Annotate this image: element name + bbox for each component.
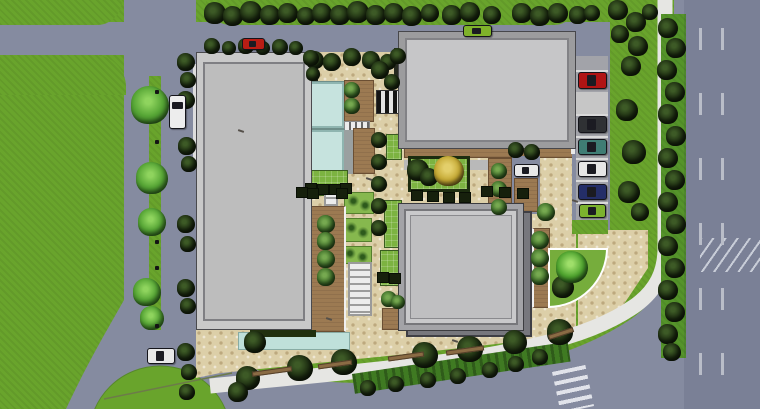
tree — [131, 86, 169, 124]
tree — [177, 53, 195, 71]
tree — [384, 74, 400, 90]
tree — [138, 208, 166, 236]
tree — [260, 5, 280, 25]
tree — [133, 278, 161, 306]
white-van-west-road — [169, 95, 186, 129]
tree — [628, 36, 648, 56]
ground-mark — [238, 129, 244, 133]
tree — [343, 48, 361, 66]
hedge-shrub — [307, 188, 319, 199]
hedge-shrub — [411, 190, 423, 201]
lane-dash — [699, 288, 702, 310]
tree — [611, 25, 629, 43]
tree — [140, 306, 164, 330]
tree — [360, 380, 376, 396]
tree — [524, 144, 540, 160]
car-windshield — [587, 164, 596, 174]
tree — [537, 203, 555, 221]
car-windshield — [249, 41, 256, 47]
tree — [531, 249, 549, 267]
tree — [450, 368, 466, 384]
tree — [204, 38, 220, 54]
tree — [658, 192, 678, 212]
hedge-shrub — [377, 272, 389, 283]
lane-dash — [721, 28, 724, 50]
car-windshield — [172, 102, 183, 109]
car-windshield — [156, 351, 164, 361]
tree — [391, 295, 405, 309]
tree — [482, 362, 498, 378]
lane-dash — [699, 93, 702, 115]
hedge-shrub — [427, 191, 439, 202]
car-windshield — [587, 75, 596, 86]
tree — [658, 280, 678, 300]
path-light — [155, 266, 159, 270]
tree — [658, 18, 678, 38]
tree — [178, 137, 196, 155]
tree — [317, 215, 335, 233]
tree — [584, 5, 600, 21]
tree — [222, 41, 236, 55]
dark-car-stall — [578, 116, 607, 133]
tree — [531, 267, 549, 285]
teal-car-stall — [578, 139, 607, 155]
tree — [666, 38, 686, 58]
tree — [366, 5, 386, 25]
tree — [434, 156, 464, 186]
tree — [371, 198, 387, 214]
tree — [244, 331, 266, 353]
tree — [508, 142, 524, 158]
tree — [503, 330, 527, 354]
tree — [658, 236, 678, 256]
tree — [384, 3, 404, 23]
car-windshield — [522, 167, 529, 174]
lane-dash — [721, 288, 724, 310]
tree — [460, 2, 480, 22]
red-car-top-road — [242, 38, 265, 50]
site-plan-render — [0, 0, 760, 409]
tree — [344, 98, 360, 114]
tree — [289, 41, 303, 55]
tree — [371, 176, 387, 192]
path-light — [155, 140, 159, 144]
tree — [323, 53, 341, 71]
red-car-stall — [578, 72, 607, 89]
tree — [181, 156, 197, 172]
lane-dash — [699, 353, 702, 375]
white-car-roundabout — [147, 348, 175, 364]
tree — [530, 6, 550, 26]
tree — [177, 279, 195, 297]
tree — [512, 3, 532, 23]
tree — [548, 3, 568, 23]
white-car-stall — [578, 161, 607, 177]
tree — [421, 4, 439, 22]
hedge-shrub — [517, 188, 529, 199]
tree — [136, 162, 168, 194]
ground-mark — [366, 177, 372, 181]
white-car-courtyard-lane — [514, 164, 539, 177]
lane-dash — [721, 93, 724, 115]
hedge-shrub — [336, 188, 348, 199]
tree — [228, 382, 248, 402]
car-windshield — [587, 142, 596, 152]
tree — [312, 3, 332, 23]
hedge-shrub — [499, 187, 511, 198]
tree — [483, 6, 501, 24]
tree — [317, 268, 335, 286]
tree — [371, 154, 387, 170]
ground-mark — [326, 317, 332, 321]
tree — [665, 170, 685, 190]
tree — [508, 356, 524, 372]
tree — [402, 6, 422, 26]
tree — [272, 39, 288, 55]
tree — [420, 372, 436, 388]
tree — [663, 343, 681, 361]
tree — [621, 56, 641, 76]
car-windshield — [588, 207, 596, 215]
lane-dash — [699, 28, 702, 50]
tree — [371, 132, 387, 148]
tree — [622, 140, 646, 164]
generated-layer — [0, 0, 760, 409]
tree — [616, 99, 638, 121]
tree — [665, 82, 685, 102]
hedge-shrub — [443, 192, 455, 203]
tree — [556, 251, 588, 283]
tree — [532, 349, 548, 365]
tree — [240, 1, 262, 23]
tree — [531, 231, 549, 249]
tree — [658, 104, 678, 124]
tree — [180, 72, 196, 88]
lane-dash — [699, 158, 702, 180]
tree — [180, 236, 196, 252]
tree — [657, 60, 677, 80]
tree — [390, 48, 406, 64]
green-car-stall — [579, 204, 606, 218]
tree — [658, 324, 678, 344]
ground-mark — [452, 339, 458, 343]
tree — [177, 215, 195, 233]
hedge-shrub — [481, 186, 493, 197]
ground-mark — [572, 199, 578, 203]
hedge-shrub — [389, 273, 401, 284]
tree — [658, 148, 678, 168]
tree — [665, 302, 685, 322]
wood-bench — [252, 366, 292, 377]
tree — [306, 67, 320, 81]
lane-dash — [721, 158, 724, 180]
tree — [181, 364, 197, 380]
tree — [618, 181, 640, 203]
tree — [666, 126, 686, 146]
path-light — [155, 90, 159, 94]
tree — [317, 250, 335, 268]
tree — [344, 82, 360, 98]
tree — [631, 203, 649, 221]
tree — [177, 343, 195, 361]
car-windshield — [587, 187, 596, 197]
lane-dash — [721, 223, 724, 245]
tree — [608, 0, 628, 20]
path-light — [155, 324, 159, 328]
path-light — [155, 240, 159, 244]
tree — [278, 3, 298, 23]
tree — [665, 258, 685, 278]
lane-dash — [721, 353, 724, 375]
tree — [303, 50, 319, 66]
car-windshield — [587, 119, 596, 130]
tree — [317, 232, 335, 250]
hedge-shrub — [459, 192, 471, 203]
tree — [491, 199, 507, 215]
car-windshield — [472, 28, 481, 34]
tree — [180, 298, 196, 314]
tree — [442, 5, 462, 25]
blue-car-stall — [578, 184, 607, 200]
tree — [388, 376, 404, 392]
tree — [491, 163, 507, 179]
tree — [371, 220, 387, 236]
tree — [666, 214, 686, 234]
tree — [179, 384, 195, 400]
green-car-top-road — [463, 25, 492, 37]
lane-dash — [699, 223, 702, 245]
tree — [642, 4, 658, 20]
